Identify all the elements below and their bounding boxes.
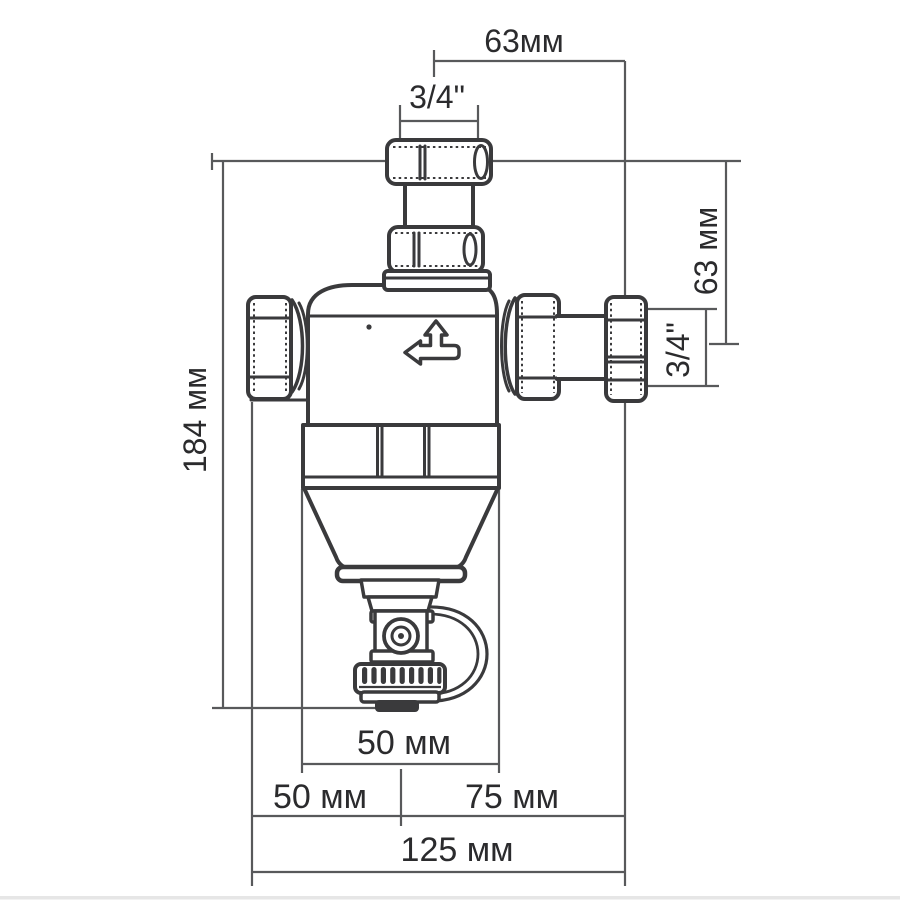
drain-collar-lower (368, 597, 432, 611)
label-top-offset: 63мм (484, 23, 564, 59)
drain-port-center (398, 633, 404, 639)
right-pipe-fill (557, 318, 608, 378)
label-right-height: 63 мм (688, 207, 724, 295)
right-union-nut (517, 295, 559, 399)
filter-cone (304, 488, 498, 569)
drain-outlet (375, 700, 419, 712)
right-flange-outer (505, 298, 515, 394)
valve-dimension-drawing: 63мм 3/4" 63 мм 3/4" 184 мм 50 мм 50 мм … (0, 0, 900, 900)
body-mark-dot (366, 324, 371, 329)
label-top-thread: 3/4" (409, 79, 465, 115)
label-bottom-left: 50 мм (273, 778, 367, 816)
filter-body (308, 285, 497, 425)
device (248, 140, 646, 712)
left-flange-outer (292, 300, 303, 392)
knurl-teeth (362, 667, 441, 684)
filter-band (303, 425, 499, 488)
top-pipe-fill (405, 182, 473, 229)
label-bottom-right: 75 мм (465, 778, 559, 816)
label-overall-height: 184 мм (177, 367, 213, 473)
drawing-canvas: 63мм 3/4" 63 мм 3/4" 184 мм 50 мм 50 мм … (0, 0, 900, 900)
label-overall-width: 125 мм (401, 831, 514, 869)
drain-collar-upper (361, 580, 439, 597)
bottom-edge-strip (0, 896, 900, 900)
label-body-width: 50 мм (357, 724, 451, 762)
top-port-collar (384, 271, 490, 290)
label-right-thread: 3/4" (660, 322, 696, 378)
